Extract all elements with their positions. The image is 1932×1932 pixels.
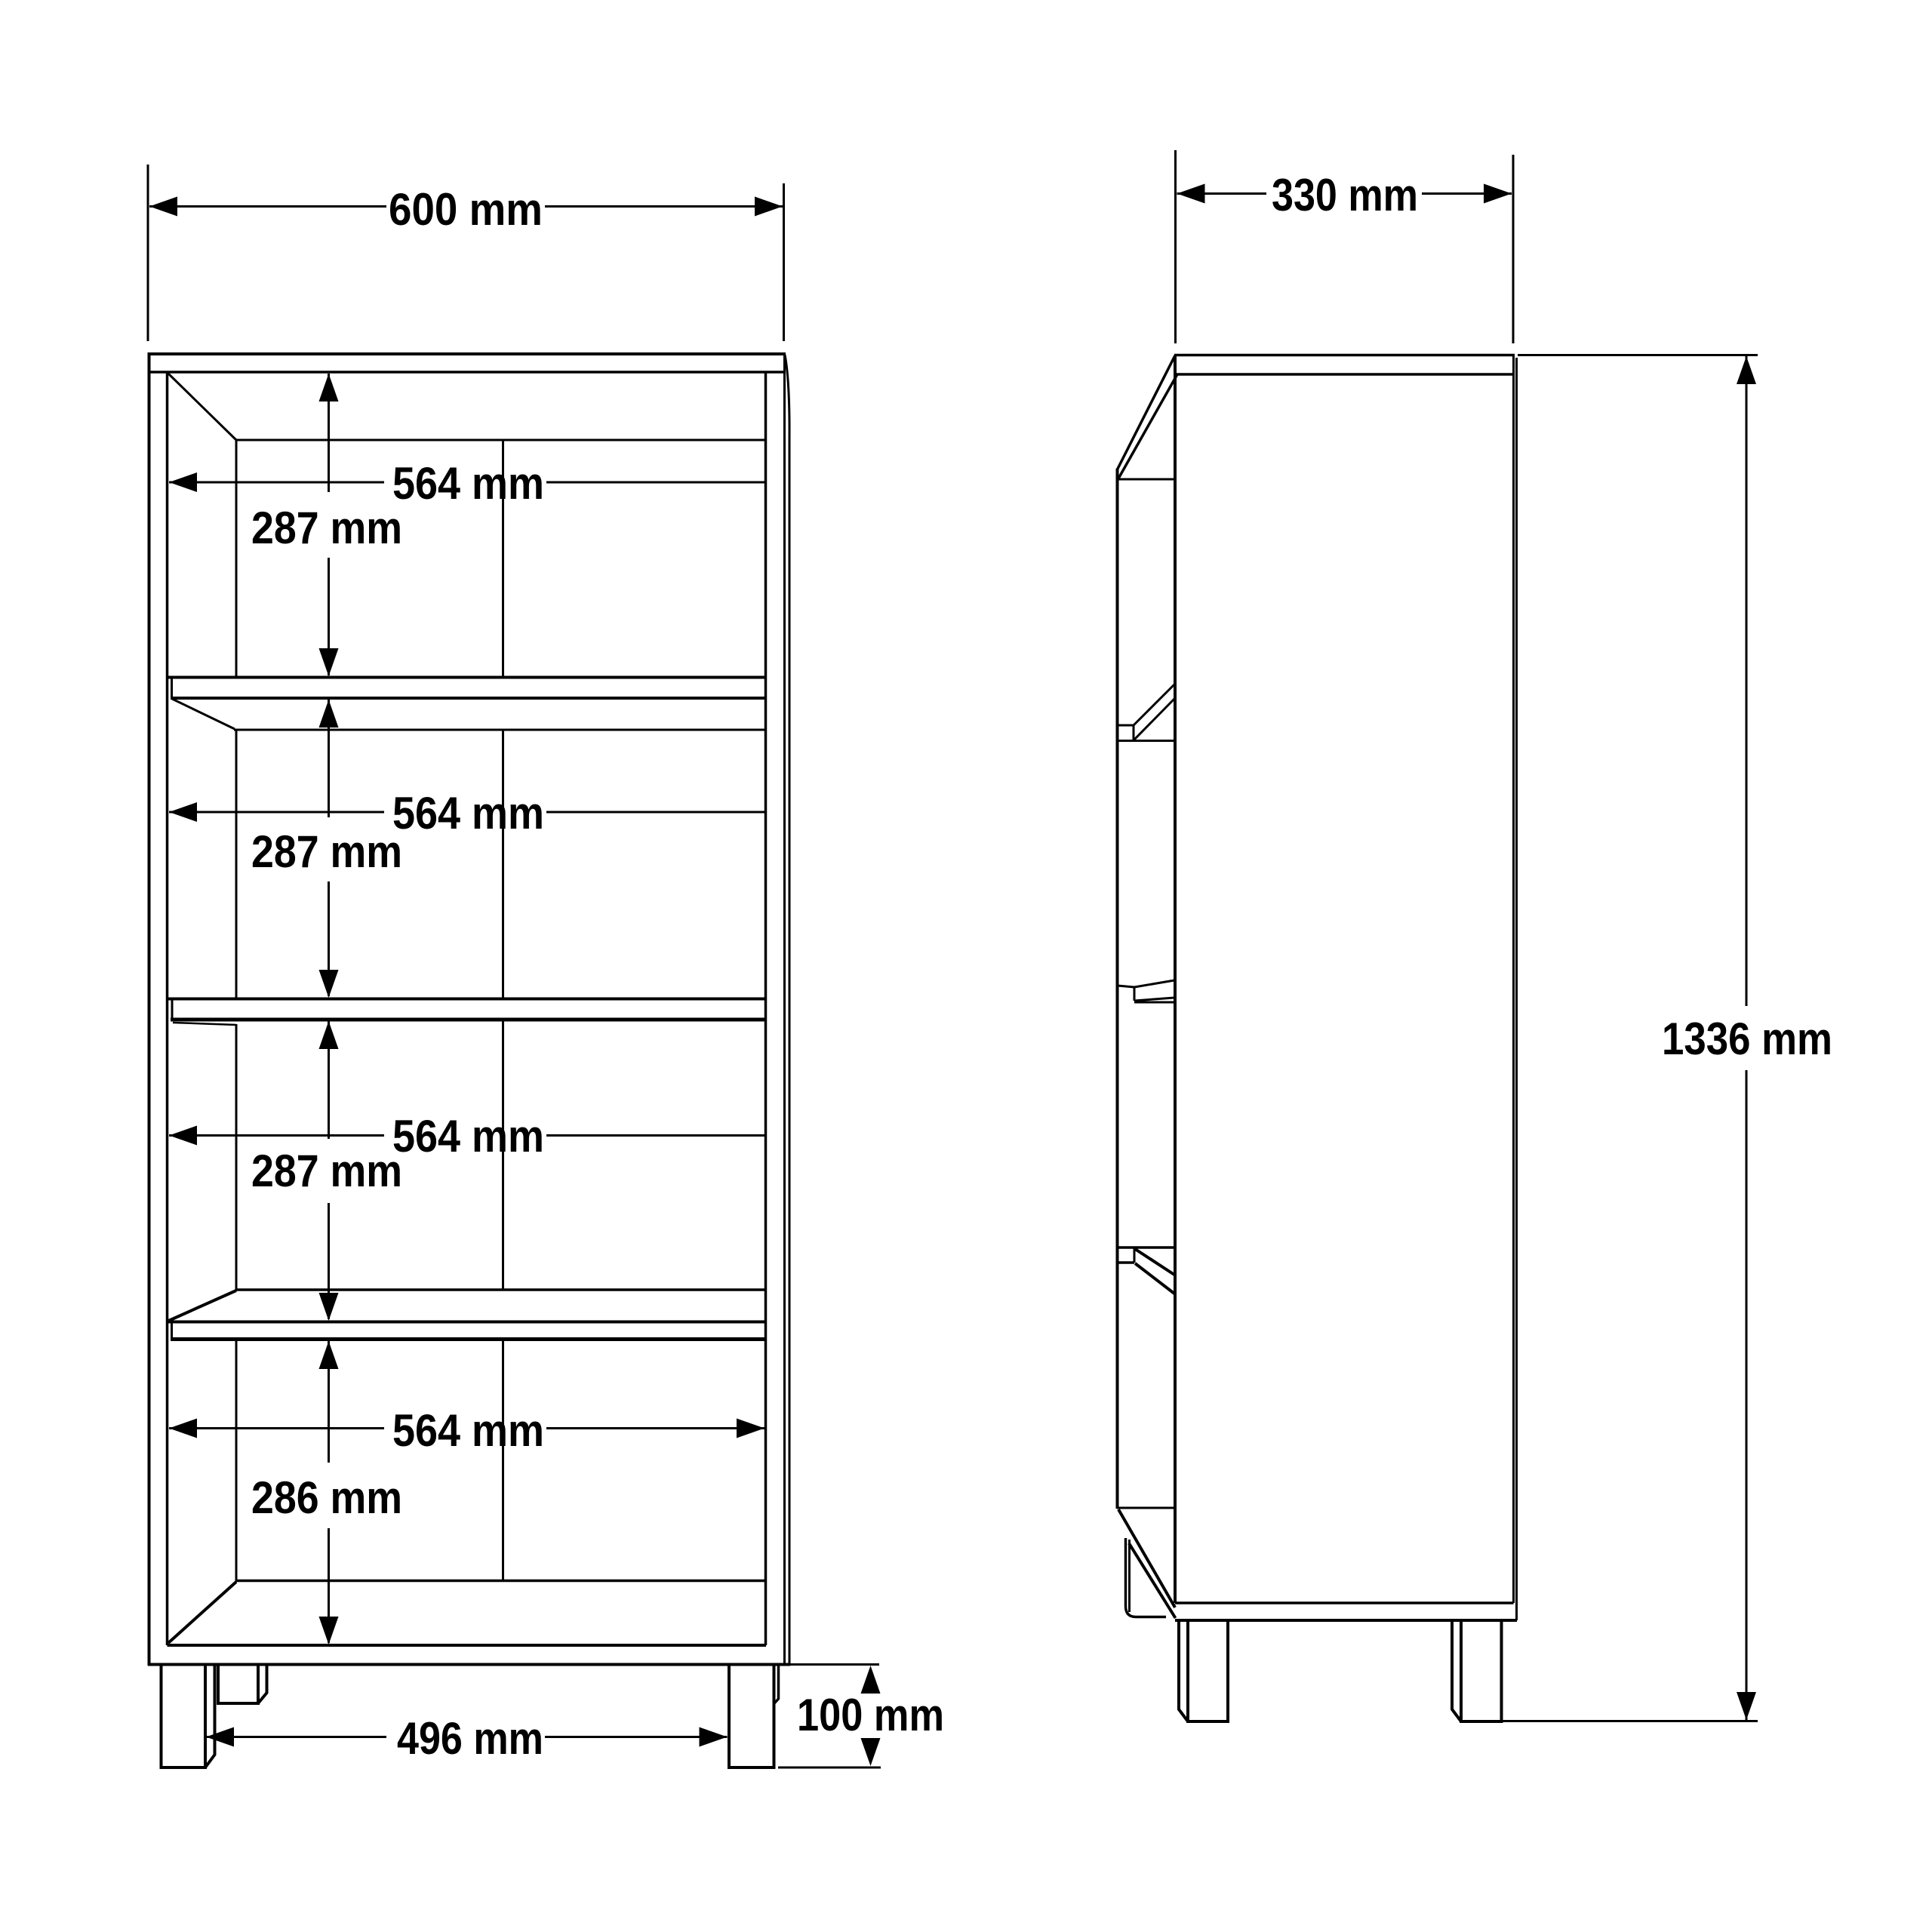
svg-text:496 mm: 496 mm bbox=[397, 1713, 543, 1764]
svg-text:287 mm: 287 mm bbox=[251, 1146, 402, 1196]
svg-text:564 mm: 564 mm bbox=[392, 1405, 544, 1456]
svg-text:286 mm: 286 mm bbox=[251, 1472, 402, 1523]
svg-text:564 mm: 564 mm bbox=[392, 788, 544, 838]
svg-text:287 mm: 287 mm bbox=[251, 826, 402, 877]
svg-text:1336 mm: 1336 mm bbox=[1662, 1014, 1832, 1064]
svg-text:564 mm: 564 mm bbox=[392, 458, 544, 509]
svg-text:330 mm: 330 mm bbox=[1272, 170, 1418, 220]
svg-text:287 mm: 287 mm bbox=[251, 503, 402, 553]
svg-text:600 mm: 600 mm bbox=[389, 184, 543, 235]
svg-text:100 mm: 100 mm bbox=[797, 1690, 944, 1740]
svg-text:564 mm: 564 mm bbox=[392, 1111, 544, 1161]
